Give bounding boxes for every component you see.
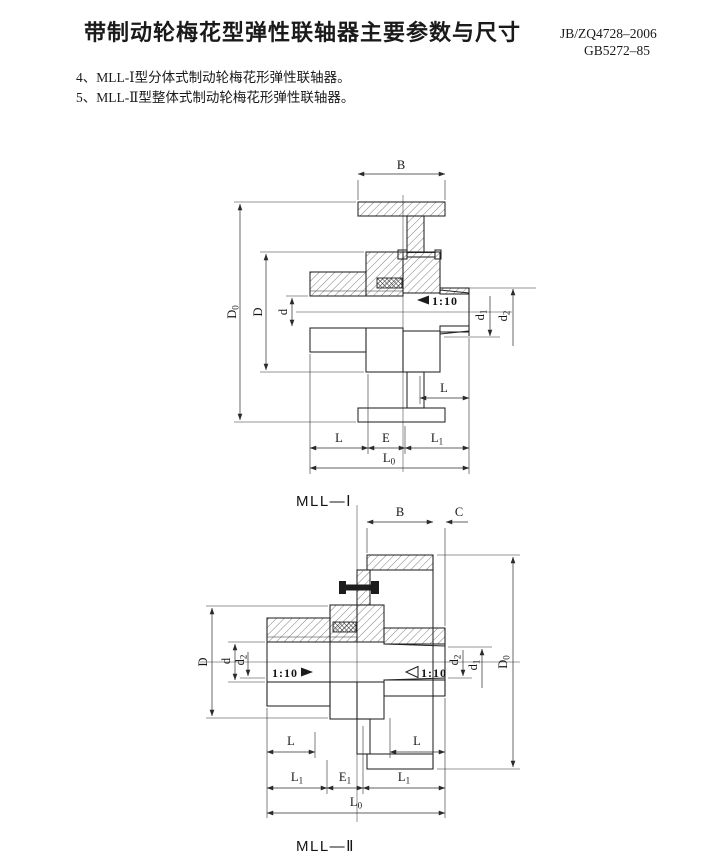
dim-label-l0-1: L0 (383, 451, 396, 467)
dim-label-d1-2: d1 (466, 660, 482, 671)
section-upper-2 (267, 555, 445, 644)
dim-label-d-2: D (196, 657, 210, 666)
dim-label-l-left-2: L (287, 734, 295, 748)
dim-label-l-right-1: L (440, 381, 448, 395)
taper-arrow-left-icon (406, 667, 418, 678)
drawing-mll-2: B C D d d2 1:10 (196, 505, 520, 855)
drawing-caption-mll1: MLL—Ⅰ (296, 493, 352, 510)
left-flange (366, 252, 403, 296)
dim-label-b2: B (396, 505, 404, 519)
document-page: 带制动轮梅花型弹性联轴器主要参数与尺寸 JB/ZQ4728–2006 GB527… (0, 0, 725, 855)
dim-label-l-right-2: L (413, 734, 421, 748)
taper-label-1: 1:10 (432, 294, 458, 308)
dim-label-e1-2: E1 (339, 770, 351, 786)
brake-wheel-rim (358, 202, 445, 216)
dim-label-d0-2: D0 (496, 655, 512, 669)
dim-label-l1-left-2: L1 (291, 770, 303, 786)
dim-label-l1-right-2: L1 (398, 770, 410, 786)
dimensions-2: B C D d d2 1:10 (196, 505, 520, 818)
dim-label-d-1: D (251, 307, 265, 316)
technical-drawings: B D0 D d d1 d2 (0, 0, 725, 855)
left-hub (310, 272, 366, 296)
brake-wheel-web (407, 216, 424, 252)
dim-label-d2-right: d2 (447, 655, 463, 666)
taper-label-right-2: 1:10 (421, 666, 447, 680)
drawing-caption-mll2: MLL—Ⅱ (296, 838, 355, 855)
section-lower-2 (267, 680, 445, 769)
drawing-mll-1: B D0 D d d1 d2 (225, 158, 536, 510)
dim-label-l0-2: L0 (350, 795, 363, 811)
taper-arrow-icon-1 (417, 296, 429, 305)
dim-label-b1: B (397, 158, 405, 172)
taper-label-left-2: 1:10 (272, 666, 298, 680)
dim-label-c2: C (455, 505, 463, 519)
dim-label-d-small-1: d (276, 308, 290, 315)
section-lower-1 (310, 326, 469, 422)
dim-label-d1-1: d1 (473, 310, 489, 321)
dim-label-l1-1: L1 (431, 431, 443, 447)
taper-arrow-right-icon (301, 668, 313, 677)
right-flange (403, 252, 440, 293)
elastomer-spider (377, 278, 402, 288)
centerlines-1 (296, 195, 512, 472)
dim-label-l-1: L (335, 431, 343, 445)
right-hub-2 (384, 628, 445, 644)
brake-wheel-rim-2 (367, 555, 433, 570)
dim-label-e-1: E (382, 431, 390, 445)
section-upper-1 (310, 202, 469, 296)
dim-label-d-small-2: d (219, 657, 233, 664)
right-flange-2 (357, 605, 384, 642)
elastomer-spider-2 (333, 622, 356, 632)
left-hub-2 (267, 618, 330, 642)
dim-label-d0-1: D0 (225, 305, 241, 319)
